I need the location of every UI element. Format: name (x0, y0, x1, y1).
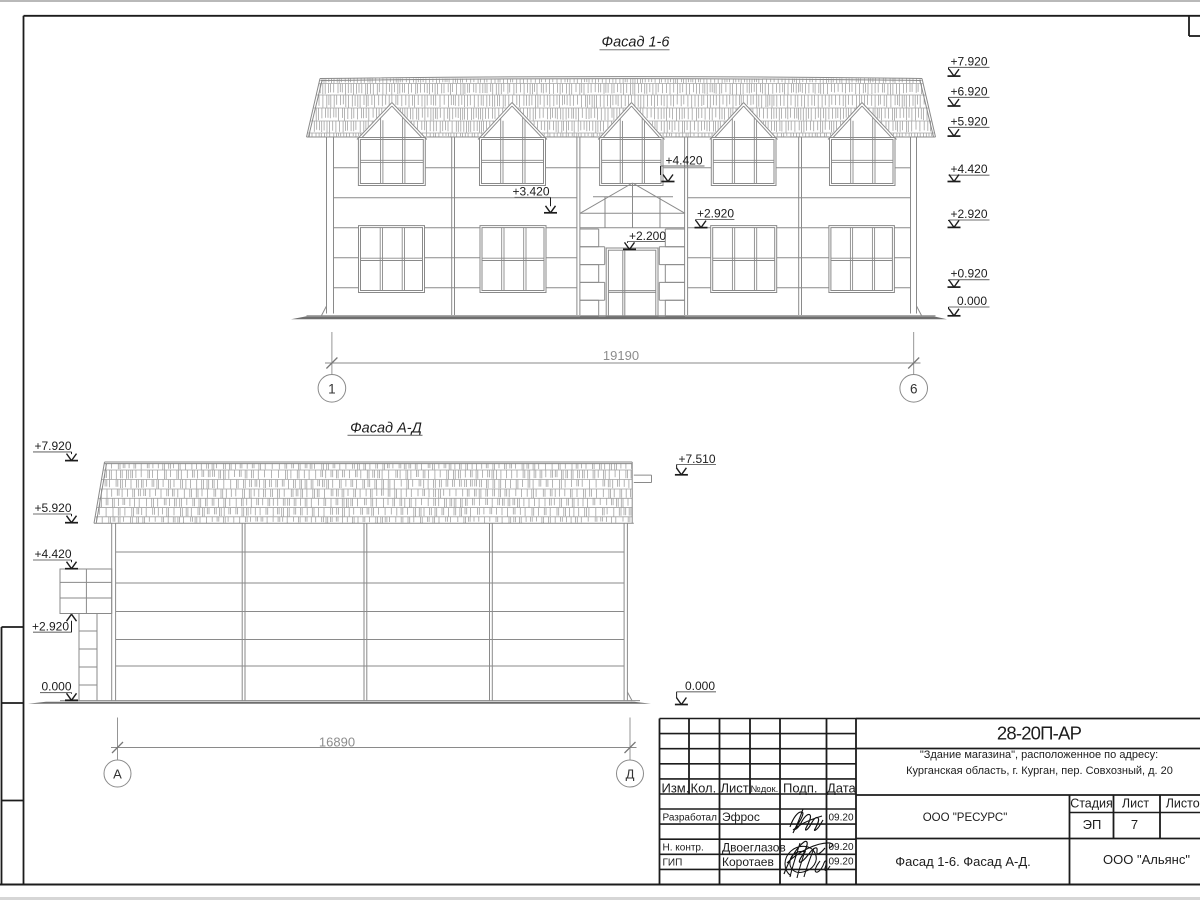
svg-text:Лист: Лист (721, 781, 749, 796)
svg-text:+7.920: +7.920 (950, 54, 987, 68)
svg-text:"Здание магазина", расположенн: "Здание магазина", расположенное по адре… (920, 749, 1158, 761)
svg-text:А: А (113, 767, 122, 782)
svg-text:16890: 16890 (319, 735, 355, 750)
svg-text:Подп.: Подп. (783, 781, 818, 796)
svg-text:19190: 19190 (603, 348, 639, 363)
svg-text:+2.920: +2.920 (697, 207, 734, 221)
svg-text:ЭП: ЭП (1083, 817, 1102, 832)
svg-text:Разработал: Разработал (663, 812, 718, 824)
svg-text:+2.920: +2.920 (950, 207, 987, 221)
svg-text:Фасад 1-6: Фасад 1-6 (602, 35, 671, 51)
svg-text:+7.510: +7.510 (678, 452, 715, 466)
svg-text:Двоеглазов: Двоеглазов (722, 841, 786, 855)
svg-text:Листов: Листов (1166, 797, 1200, 811)
svg-text:6: 6 (910, 381, 918, 396)
svg-text:ООО "РЕСУРС": ООО "РЕСУРС" (923, 812, 1008, 824)
svg-text:Фасад А-Д: Фасад А-Д (350, 421, 422, 437)
svg-text:Д: Д (626, 767, 635, 782)
svg-text:+3.420: +3.420 (512, 185, 549, 199)
svg-text:Фасад 1-6. Фасад А-Д.: Фасад 1-6. Фасад А-Д. (895, 854, 1031, 869)
svg-text:Лист: Лист (1122, 797, 1149, 811)
svg-text:0.000: 0.000 (957, 294, 987, 308)
svg-text:0.000: 0.000 (685, 679, 715, 693)
svg-text:09.20: 09.20 (828, 813, 853, 824)
svg-text:№док.: №док. (751, 784, 779, 795)
svg-text:09.20: 09.20 (828, 857, 853, 868)
svg-text:Коротаев: Коротаев (722, 855, 774, 869)
svg-text:+5.920: +5.920 (34, 501, 71, 515)
svg-text:+4.420: +4.420 (34, 547, 71, 561)
svg-text:+2.200: +2.200 (629, 229, 666, 243)
svg-text:Н. контр.: Н. контр. (663, 843, 704, 854)
svg-text:+0.920: +0.920 (950, 267, 987, 281)
svg-text:+4.420: +4.420 (950, 162, 987, 176)
svg-text:ГИП: ГИП (663, 858, 683, 869)
svg-text:7: 7 (1131, 817, 1138, 832)
svg-text:+7.920: +7.920 (34, 439, 71, 453)
svg-text:+2.920: +2.920 (32, 620, 69, 634)
svg-text:ООО "Альянс": ООО "Альянс" (1103, 852, 1190, 867)
svg-text:+5.920: +5.920 (950, 114, 987, 128)
svg-text:+4.420: +4.420 (665, 153, 702, 167)
svg-text:Стадия: Стадия (1070, 797, 1113, 811)
svg-text:28-20П-АР: 28-20П-АР (997, 723, 1082, 744)
svg-text:Дата: Дата (827, 781, 857, 796)
svg-text:Изм.: Изм. (662, 781, 690, 796)
svg-text:1: 1 (328, 381, 336, 396)
svg-text:Курганская область, г. Курган,: Курганская область, г. Курган, пер. Совх… (906, 765, 1173, 777)
svg-text:0.000: 0.000 (41, 680, 71, 694)
svg-text:+6.920: +6.920 (950, 84, 987, 98)
svg-text:Эфрос: Эфрос (722, 810, 760, 824)
svg-text:Кол.: Кол. (691, 781, 717, 796)
